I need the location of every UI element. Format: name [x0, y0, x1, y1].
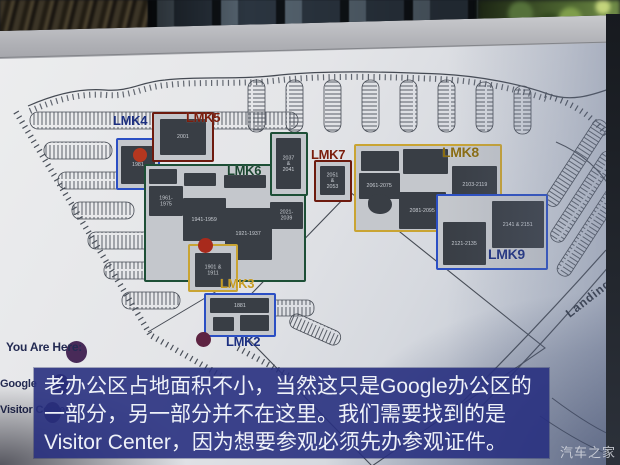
lmk2-marker-dot	[196, 332, 211, 347]
building	[240, 315, 269, 331]
zone-label-lmk6: LMK6	[227, 163, 261, 178]
zone-label-lmk4: LMK4	[113, 113, 147, 128]
caption-line-3: Visitor Center，因为想要参观必须先办参观证件。	[44, 429, 549, 457]
caption-line-2: 一部分，另一部分并不在这里。我们需要找到的是	[44, 401, 549, 429]
building: 2051 & 2053	[320, 166, 345, 195]
sign-right-edge	[606, 14, 620, 465]
legend-you-are-here: You Are Here:	[6, 340, 82, 354]
watermark: 汽车之家	[560, 442, 616, 461]
caption-box: 老办公区占地面积不小，当然这只是Google办公区的 一部分，另一部分并不在这里…	[34, 368, 549, 458]
building: 2121-2135	[443, 222, 486, 265]
building	[213, 317, 234, 331]
building: 2037 & 2041	[276, 138, 301, 189]
zone-label-lmk8: LMK8	[442, 144, 479, 160]
legend-google: Google	[0, 378, 37, 390]
zone-label-lmk5: LMK5	[186, 110, 220, 125]
building: 1941-1959	[183, 198, 226, 241]
zone-lmk6-annex: 2037 & 2041	[270, 132, 308, 196]
building: 1961-1975	[149, 186, 183, 216]
lmk4-marker-dot	[133, 148, 147, 162]
lmk3-marker-dot	[198, 238, 213, 253]
zone-label-lmk2: LMK2	[226, 334, 260, 349]
building	[184, 173, 216, 186]
zone-label-lmk3: LMK3	[220, 276, 254, 291]
building	[361, 151, 399, 171]
building	[149, 169, 177, 184]
zone-label-lmk9: LMK9	[488, 246, 525, 262]
campus-map-photo: Landing 1981 LMK4 2001 LMK5 1961-1975 19…	[0, 0, 620, 465]
caption-line-1: 老办公区占地面积不小，当然这只是Google办公区的	[44, 373, 549, 401]
building: 1881	[210, 298, 269, 313]
zone-lmk7: 2051 & 2053	[314, 160, 352, 202]
building: 2141 & 2151	[492, 201, 544, 248]
building	[368, 194, 392, 214]
zone-label-lmk7: LMK7	[311, 147, 345, 162]
zone-lmk2: 1881	[204, 293, 276, 337]
building: 2021-2039	[270, 202, 303, 229]
